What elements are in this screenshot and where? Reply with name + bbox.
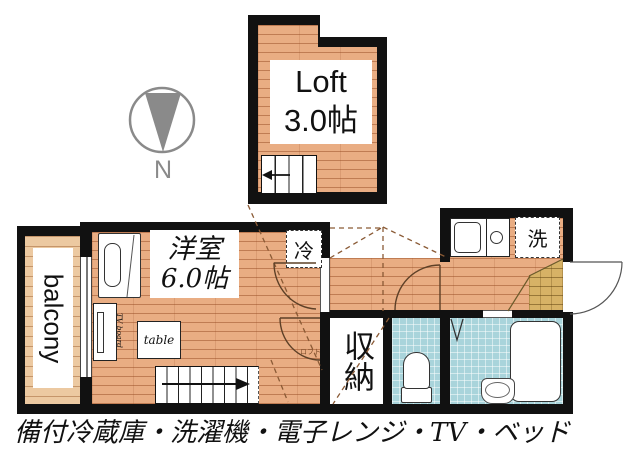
corridor-floor (330, 258, 563, 311)
loft-label-box: Loft 3.0帖 (270, 60, 372, 144)
wall-right-lower (563, 312, 573, 404)
main-room-size: 6.0帖 (161, 265, 228, 295)
main-room-label-box: 洋室 6.0帖 (150, 230, 239, 298)
loft-size: 3.0帖 (284, 102, 358, 141)
balcony-label: balcony (38, 273, 69, 363)
wall-right-upper (563, 208, 573, 262)
bath-door-gap (483, 310, 512, 318)
wall-toilet-bath-divider (440, 317, 450, 404)
compass-label: N (150, 157, 176, 183)
main-stairs (155, 366, 259, 404)
refrigerator-label: 冷 (294, 235, 314, 264)
table: table (137, 321, 181, 359)
floor-plan: Loft 3.0帖 N balcony 収納 冷 (0, 0, 640, 452)
table-label: table (144, 333, 175, 347)
balcony-label-box: balcony (33, 248, 73, 388)
loft-stairs (261, 155, 317, 194)
equipment-caption: 備付冷蔵庫・洗濯機・電子レンジ・TV・ベッド (14, 412, 634, 449)
tv-board-label: TV board (115, 313, 124, 348)
tv-board: TV board (93, 303, 117, 361)
tv-icon (97, 312, 104, 353)
loft-marker-label: ロフト (300, 347, 321, 357)
loft-name: Loft (295, 63, 347, 102)
washer-box: 洗 (515, 217, 560, 258)
wall-kitchen-left (440, 208, 450, 262)
balcony-window (80, 257, 92, 377)
storage-label: 収納 (341, 330, 372, 392)
wall-storage-left (320, 312, 330, 404)
toilet-tank (401, 387, 432, 403)
refrigerator-box: 冷 (286, 230, 322, 268)
storage-closet: 収納 (330, 318, 383, 404)
kitchen-sink (454, 222, 481, 253)
bed-pillow (104, 243, 121, 287)
entrance-door-gap (563, 262, 573, 312)
kitchen-counter-divider (486, 219, 487, 256)
bath-sink (481, 378, 515, 404)
washer-label: 洗 (528, 223, 548, 252)
bathtub (510, 321, 561, 402)
toilet-bowl (403, 352, 430, 389)
stove-burner-icon (490, 231, 503, 244)
main-room-name: 洋室 (168, 234, 222, 265)
bath-sink-basin (485, 382, 510, 398)
wall-storage-right (383, 310, 392, 404)
